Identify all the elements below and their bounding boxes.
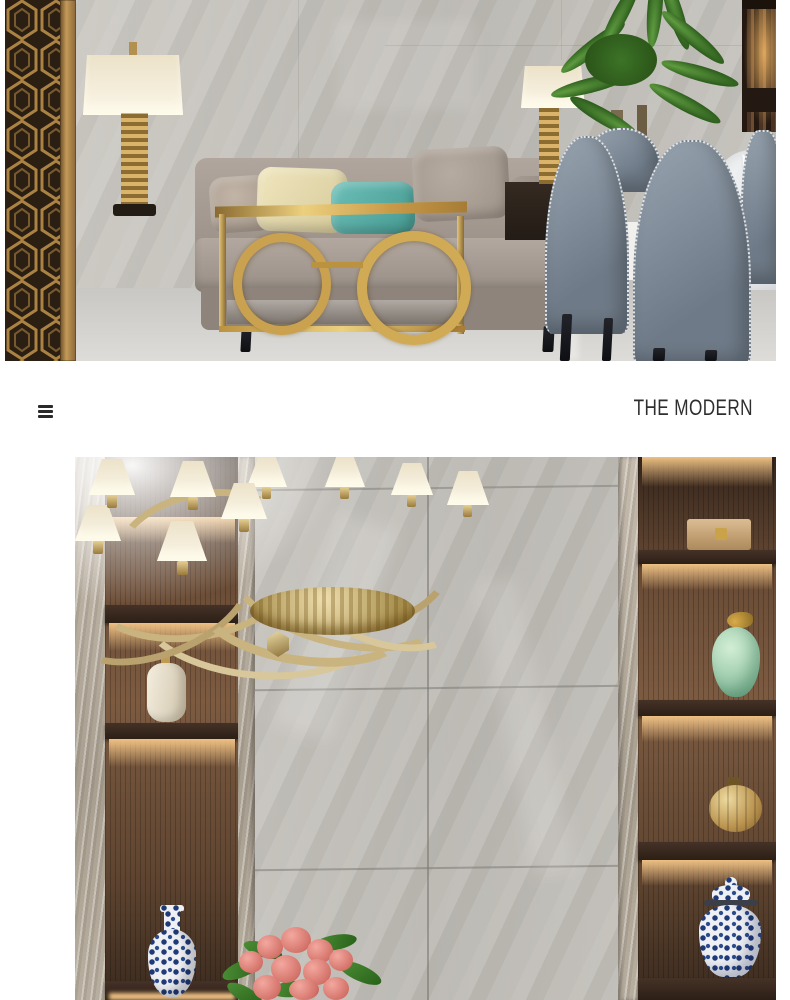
hamburger-icon[interactable] [38,405,54,419]
lamp-column [121,113,148,206]
wall-tile-joint [561,0,562,60]
flower-blossom [289,979,319,1000]
niche-light [109,739,235,767]
chandelier-shade [447,471,489,505]
console-ring [357,231,471,345]
panel-beam [742,0,776,9]
palm-center [585,34,657,86]
panel-beam [742,88,776,112]
celadon-vase [712,627,760,697]
flower-blossom [323,977,349,1000]
hamburger-bar [38,415,53,418]
shelf-board [638,700,776,716]
palm-frond [644,0,666,48]
wall-tile-joint [298,0,299,160]
console-ring [233,233,331,335]
laser-cut-screen [5,0,60,361]
marble-highlight [335,20,475,110]
candle-cup [239,519,249,532]
candle-cup [407,495,416,507]
chair-leg [653,348,666,361]
flower-blossom [329,949,353,971]
shelf-board [105,723,239,739]
brand-title: THE MODERN [634,395,753,421]
lamp-shade [83,55,183,115]
gold-gourd [709,785,762,832]
niche-light [642,564,772,590]
marble-vein [474,576,575,878]
gold-bird-ornament [727,612,753,628]
chandelier-bowl [250,587,415,635]
hamburger-bar [38,405,53,408]
decor-box [687,519,751,550]
flower-blossom [253,975,281,1000]
living-room-photo [5,0,776,361]
wall-wood-panel [742,0,776,132]
shelf-board [638,550,776,564]
ginger-jar [699,905,761,977]
palm-frond [646,78,724,129]
candle-cup [463,505,472,517]
tile-grout-horizontal [240,865,638,872]
chair-leg [705,350,718,361]
candle-cup [177,561,188,575]
shelf-board [638,978,776,1000]
display-wall-photo [75,457,776,1000]
lamp-foot [113,204,156,216]
hamburger-bar [38,410,53,413]
hexagon-pattern [5,0,60,361]
box-gold-clasp [715,528,727,540]
console-leg [219,214,226,332]
stone-pillar [618,457,638,1000]
candle-cup [188,497,198,510]
candle-cup [93,541,103,554]
shelf-board [638,842,776,860]
page: { "header": { "title": "THE MODERN", "ti… [0,0,790,1000]
niche-light [642,457,772,487]
niche-light [642,716,772,742]
palm-frond [659,55,740,91]
flower-blossom [239,951,263,973]
console-crossbar [311,262,363,268]
candle-cup [107,495,117,508]
candle-cup [340,487,349,499]
screen-frame [60,0,76,361]
panel-glow [742,0,776,132]
niche-light [642,860,772,886]
candle-cup [262,487,271,499]
cream-vase [147,663,186,722]
lamp-finial [129,42,137,57]
